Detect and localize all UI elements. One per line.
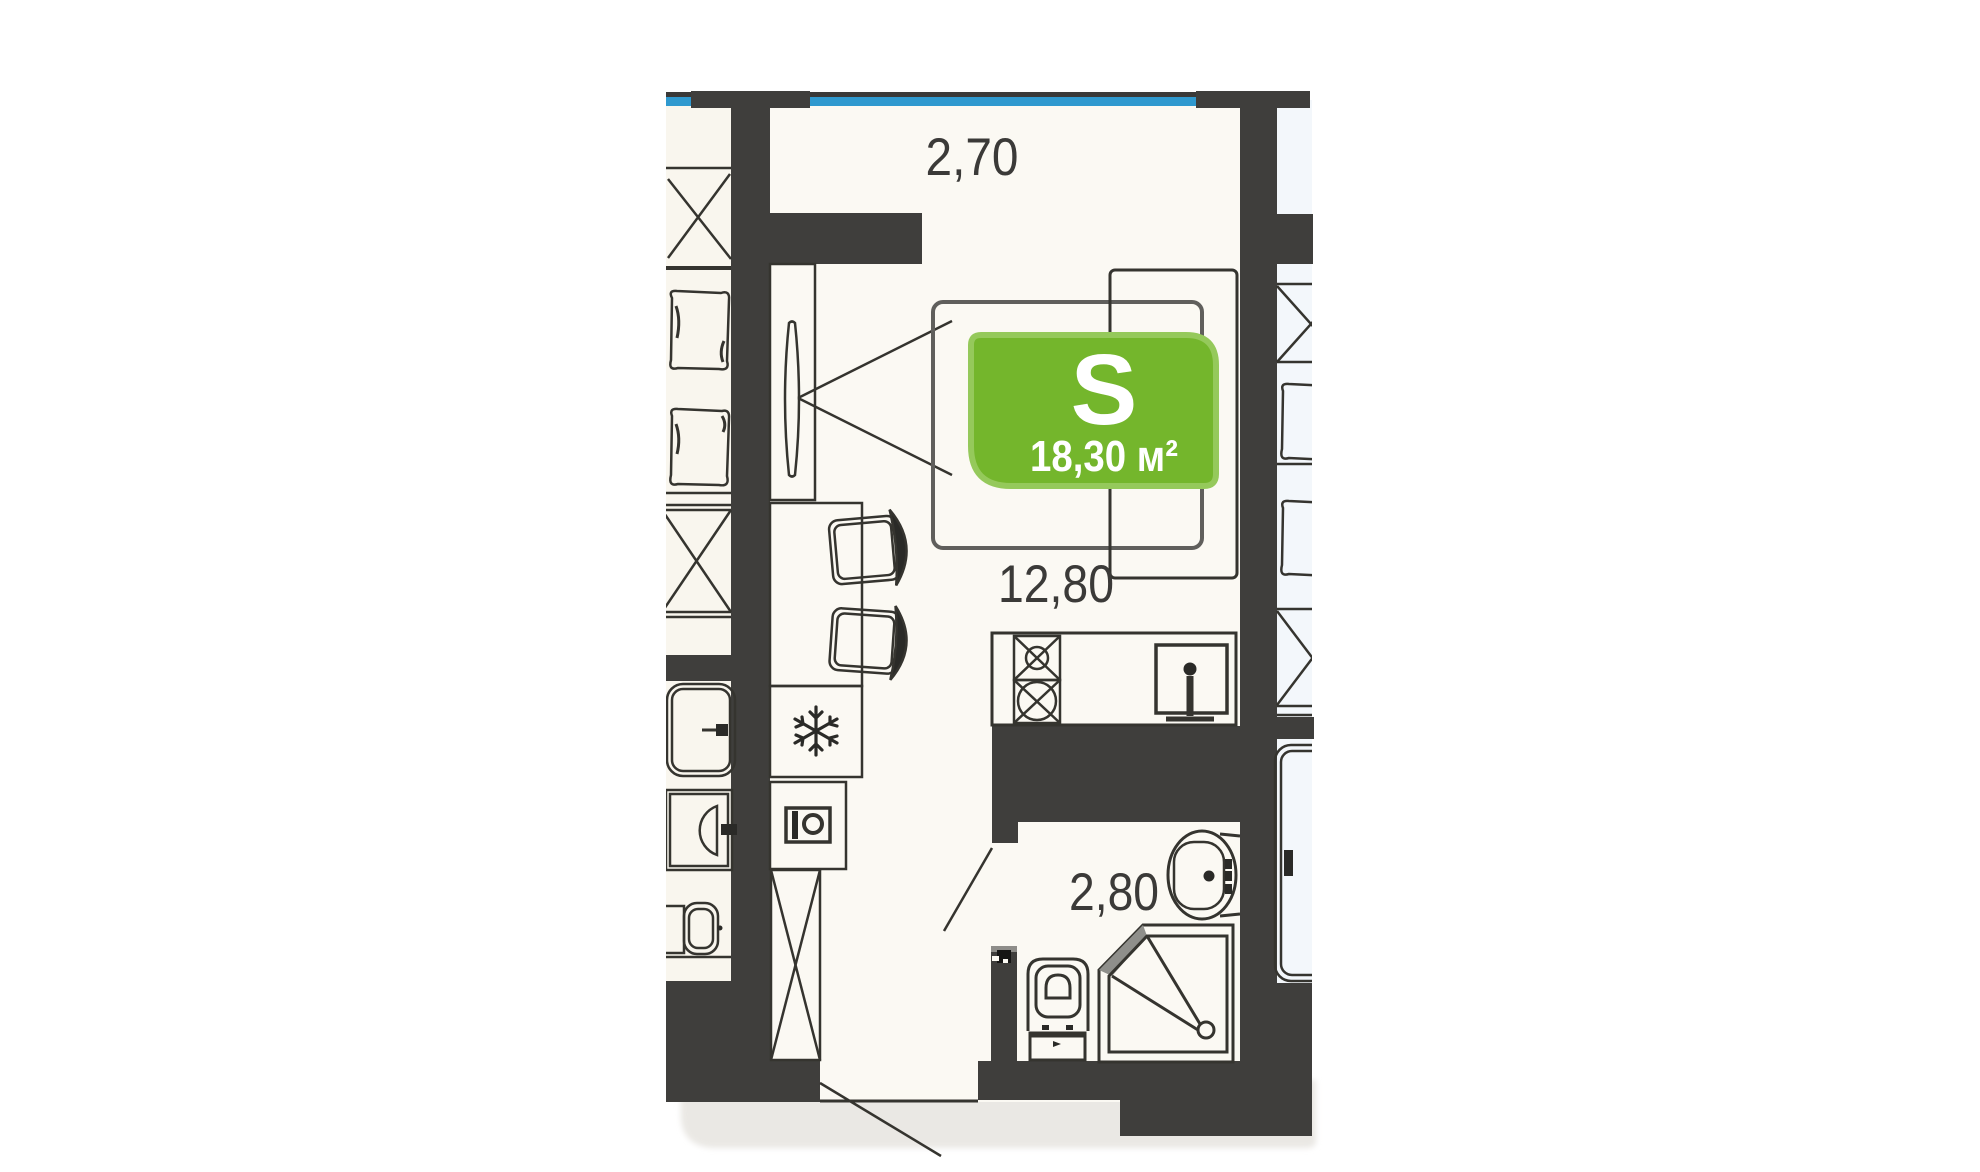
svg-text:S: S: [1071, 334, 1138, 446]
svg-text:2,80: 2,80: [1069, 863, 1159, 922]
svg-text:2,70: 2,70: [926, 128, 1019, 187]
svg-text:18,30 м²: 18,30 м²: [1030, 432, 1178, 481]
svg-text:12,80: 12,80: [998, 555, 1114, 614]
